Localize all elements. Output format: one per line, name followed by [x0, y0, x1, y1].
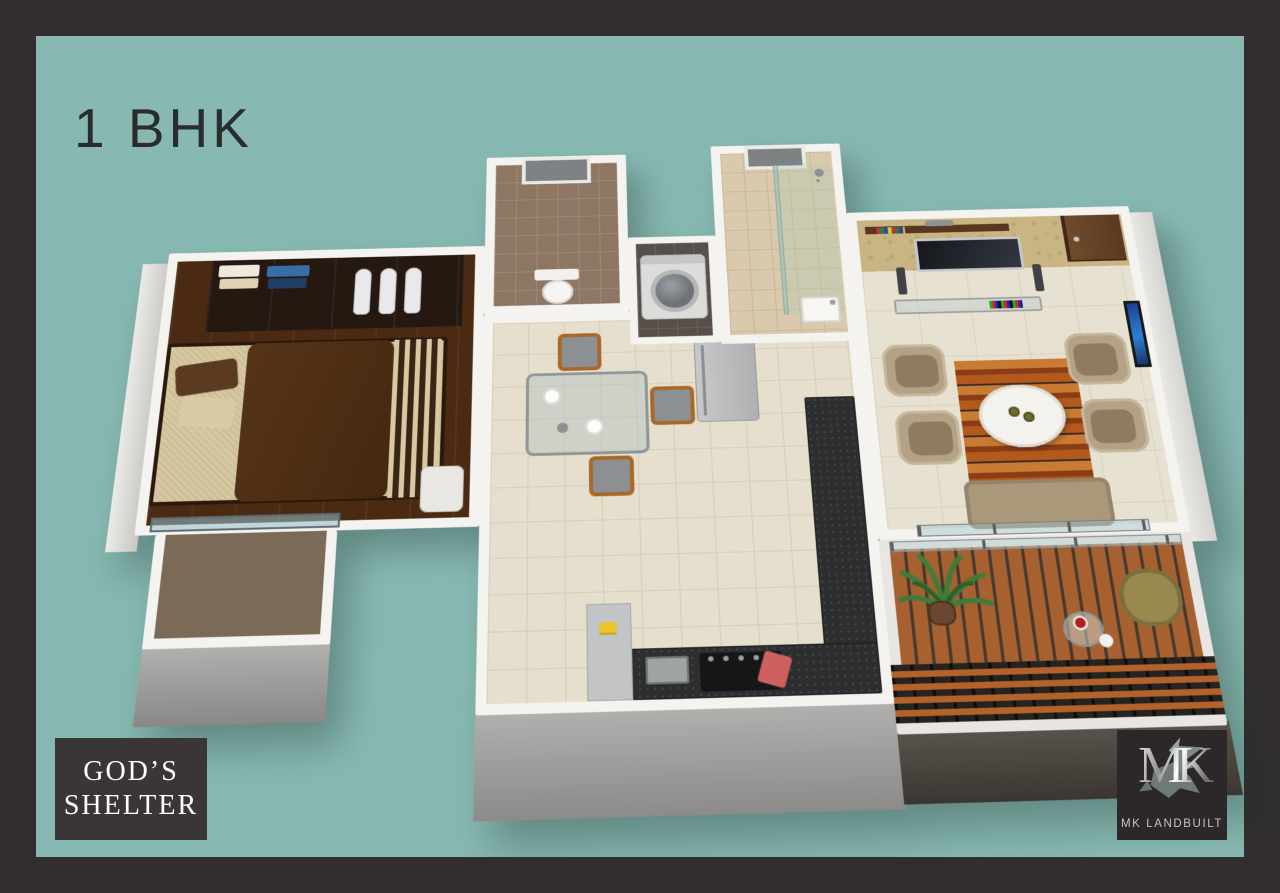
- poster-background: 1 BHK: [36, 36, 1244, 857]
- kitchen-dining-hall: [475, 306, 894, 716]
- poster: 1 BHK: [0, 0, 1280, 893]
- plate: [543, 388, 561, 405]
- project-name-line2: SHELTER: [64, 792, 198, 820]
- project-name-badge: GOD’S SHELTER: [55, 738, 207, 840]
- plate: [585, 418, 603, 435]
- logo-brand-text: MK LANDBUILT: [1117, 818, 1227, 830]
- toilet-bathroom: [484, 155, 630, 315]
- shower-head: [814, 169, 824, 177]
- armchair: [1062, 332, 1133, 385]
- washing-machine-door: [655, 273, 695, 308]
- hanging-garment: [353, 269, 372, 315]
- toilet: [542, 280, 573, 305]
- floorplan-3d-render: [91, 137, 1220, 757]
- speaker: [896, 267, 908, 294]
- plant-pot: [927, 600, 958, 626]
- toilet-tank: [534, 269, 578, 281]
- cd-stack: [989, 300, 1023, 309]
- page-title: 1 BHK: [74, 96, 253, 160]
- dining-chair: [558, 333, 602, 371]
- sponge: [599, 622, 616, 633]
- refrigerator: [693, 336, 759, 422]
- vase: [1023, 412, 1036, 422]
- entry-door: [1060, 214, 1127, 261]
- project-name-line1: GOD’S: [83, 758, 179, 786]
- logo-monogram: MK: [1117, 740, 1227, 792]
- outer-wall-bedroom-balcony-face: [133, 642, 330, 727]
- dining-chair: [650, 386, 696, 425]
- washing-machine: [640, 254, 708, 320]
- hanging-garment: [378, 268, 397, 314]
- folded-jeans: [267, 265, 310, 277]
- wall-mounted-tv: [914, 236, 1025, 272]
- glass-balustrade: [149, 513, 340, 533]
- bedroom-chair: [419, 465, 464, 512]
- bathroom-window: [522, 156, 591, 184]
- duvet: [234, 340, 395, 502]
- lounge-chair: [1115, 568, 1186, 627]
- wardrobe: [205, 255, 464, 333]
- builder-logo: MK MK LANDBUILT: [1117, 730, 1227, 840]
- pillow: [177, 396, 237, 429]
- double-bed: [148, 337, 447, 506]
- dining-chair: [589, 455, 635, 496]
- books: [876, 227, 905, 234]
- mug: [557, 423, 568, 433]
- media-console: [894, 296, 1043, 314]
- bedroom-balcony: [142, 530, 337, 649]
- vase: [1008, 406, 1020, 416]
- folded-jeans: [267, 278, 307, 289]
- folded-towels: [219, 278, 259, 289]
- wash-basin: [800, 296, 841, 323]
- bedroom: [134, 246, 485, 536]
- plate: [1098, 634, 1114, 648]
- kitchen-cabinet: [586, 603, 633, 701]
- kitchen-sink: [645, 656, 689, 685]
- pillow: [175, 358, 239, 397]
- speaker: [1032, 264, 1045, 291]
- hanging-garment: [404, 267, 422, 313]
- shower-bathroom: [711, 143, 859, 344]
- dining-table: [526, 371, 650, 457]
- folded-towels: [218, 265, 260, 278]
- outer-wall-kitchen-face: [473, 702, 907, 822]
- soundbar: [925, 220, 954, 226]
- armchair: [894, 410, 964, 466]
- louvered-parapet: [891, 656, 1226, 723]
- armchair: [881, 344, 949, 397]
- palm-plant: [890, 547, 1003, 644]
- balcony: [878, 532, 1227, 735]
- wall-shelf: [865, 224, 1010, 235]
- armchair: [1079, 398, 1152, 453]
- utility-nook: [628, 235, 721, 344]
